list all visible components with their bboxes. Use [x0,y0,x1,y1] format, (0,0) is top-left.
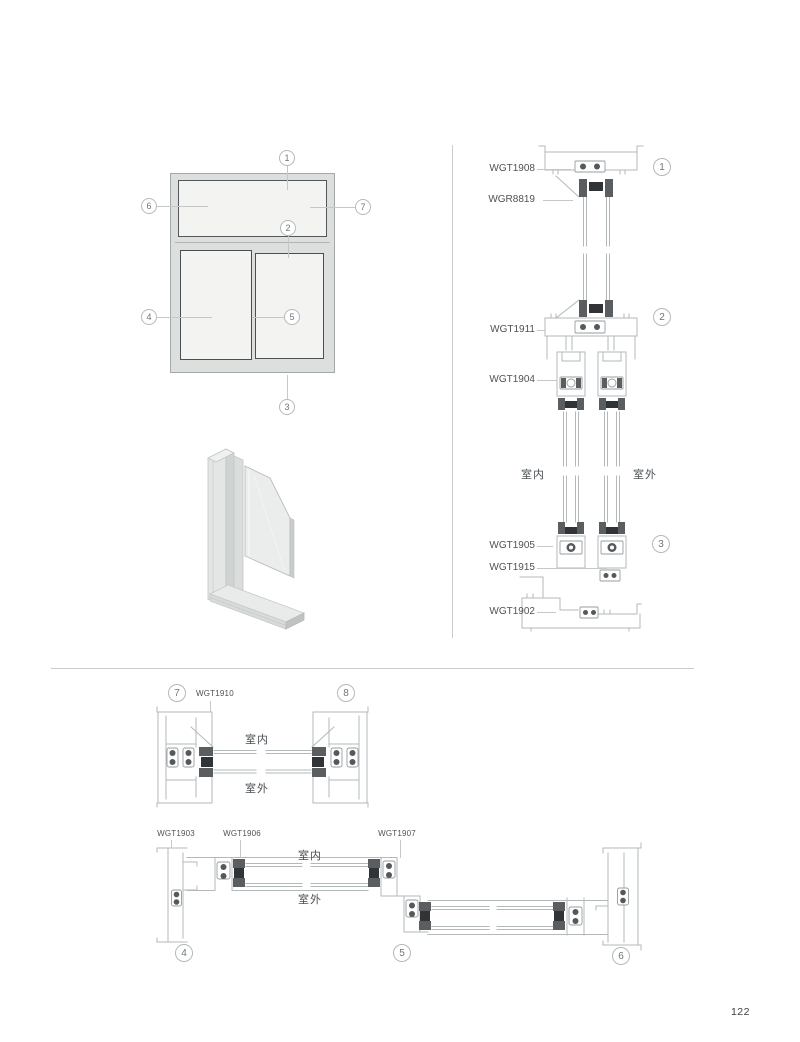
section-callout-2: 2 [653,308,671,326]
part-label-wgt1907: WGT1907 [367,829,427,838]
leader-line [287,375,288,399]
leader-line [157,317,212,318]
part-label-wgt1902: WGT1902 [455,606,535,617]
leader-line [537,380,557,381]
part-label-wgt1904: WGT1904 [455,374,535,385]
leader-line [171,840,172,848]
section-callout-7: 7 [168,684,186,702]
section-callout-5: 5 [393,944,411,962]
plan-section-fixed-drawing [145,695,380,815]
sliding-sash-right [255,253,324,359]
callout-4: 4 [141,309,157,325]
section-callout-6: 6 [612,947,630,965]
callout-1: 1 [279,150,295,166]
leader-line [287,166,288,190]
plan-section-sliding-drawing [140,820,650,965]
page-number: 122 [710,1006,750,1018]
callout-5: 5 [284,309,300,325]
part-label-wgt1911: WGT1911 [455,324,535,335]
callout-6: 6 [141,198,157,214]
sliding-sash-left [180,250,252,360]
section-callout-1: 1 [653,158,671,176]
leader-line [543,200,573,201]
section-callout-3: 3 [652,535,670,553]
callout-3: 3 [279,399,295,415]
outdoor-label: 室外 [622,466,668,482]
leader-line [537,612,556,613]
corner-section-3d-render [196,444,308,630]
leader-line [252,317,284,318]
section-callout-4: 4 [175,944,193,962]
outdoor-label: 室外 [287,891,333,907]
catalog-page: 1 6 7 2 4 5 3 [0,0,800,1042]
horizontal-divider [51,668,694,669]
callout-7: 7 [355,199,371,215]
mid-rail-line [175,242,330,243]
part-label-wgt1908: WGT1908 [455,163,535,174]
leader-line [288,236,289,258]
part-label-wgt1910: WGT1910 [196,689,234,698]
window-elevation-frame [170,173,335,373]
leader-line [537,330,545,331]
part-label-wgr8819: WGR8819 [455,194,535,205]
leader-line [537,546,553,547]
leader-line [157,206,208,207]
leader-line [537,568,607,569]
part-label-wgt1903: WGT1903 [146,829,206,838]
leader-line [310,207,355,208]
part-label-wgt1905: WGT1905 [455,540,535,551]
indoor-label: 室内 [510,466,556,482]
indoor-label: 室内 [287,847,333,863]
callout-2: 2 [280,220,296,236]
leader-line [400,840,401,858]
part-label-wgt1915: WGT1915 [455,562,535,573]
part-label-wgt1906: WGT1906 [212,829,272,838]
leader-line [537,169,571,170]
outdoor-label: 室外 [234,780,280,796]
leader-line [210,701,211,712]
indoor-label: 室内 [234,731,280,747]
vertical-divider [452,145,453,638]
section-callout-8: 8 [337,684,355,702]
leader-line [240,840,241,858]
fixed-top-pane [178,180,327,237]
